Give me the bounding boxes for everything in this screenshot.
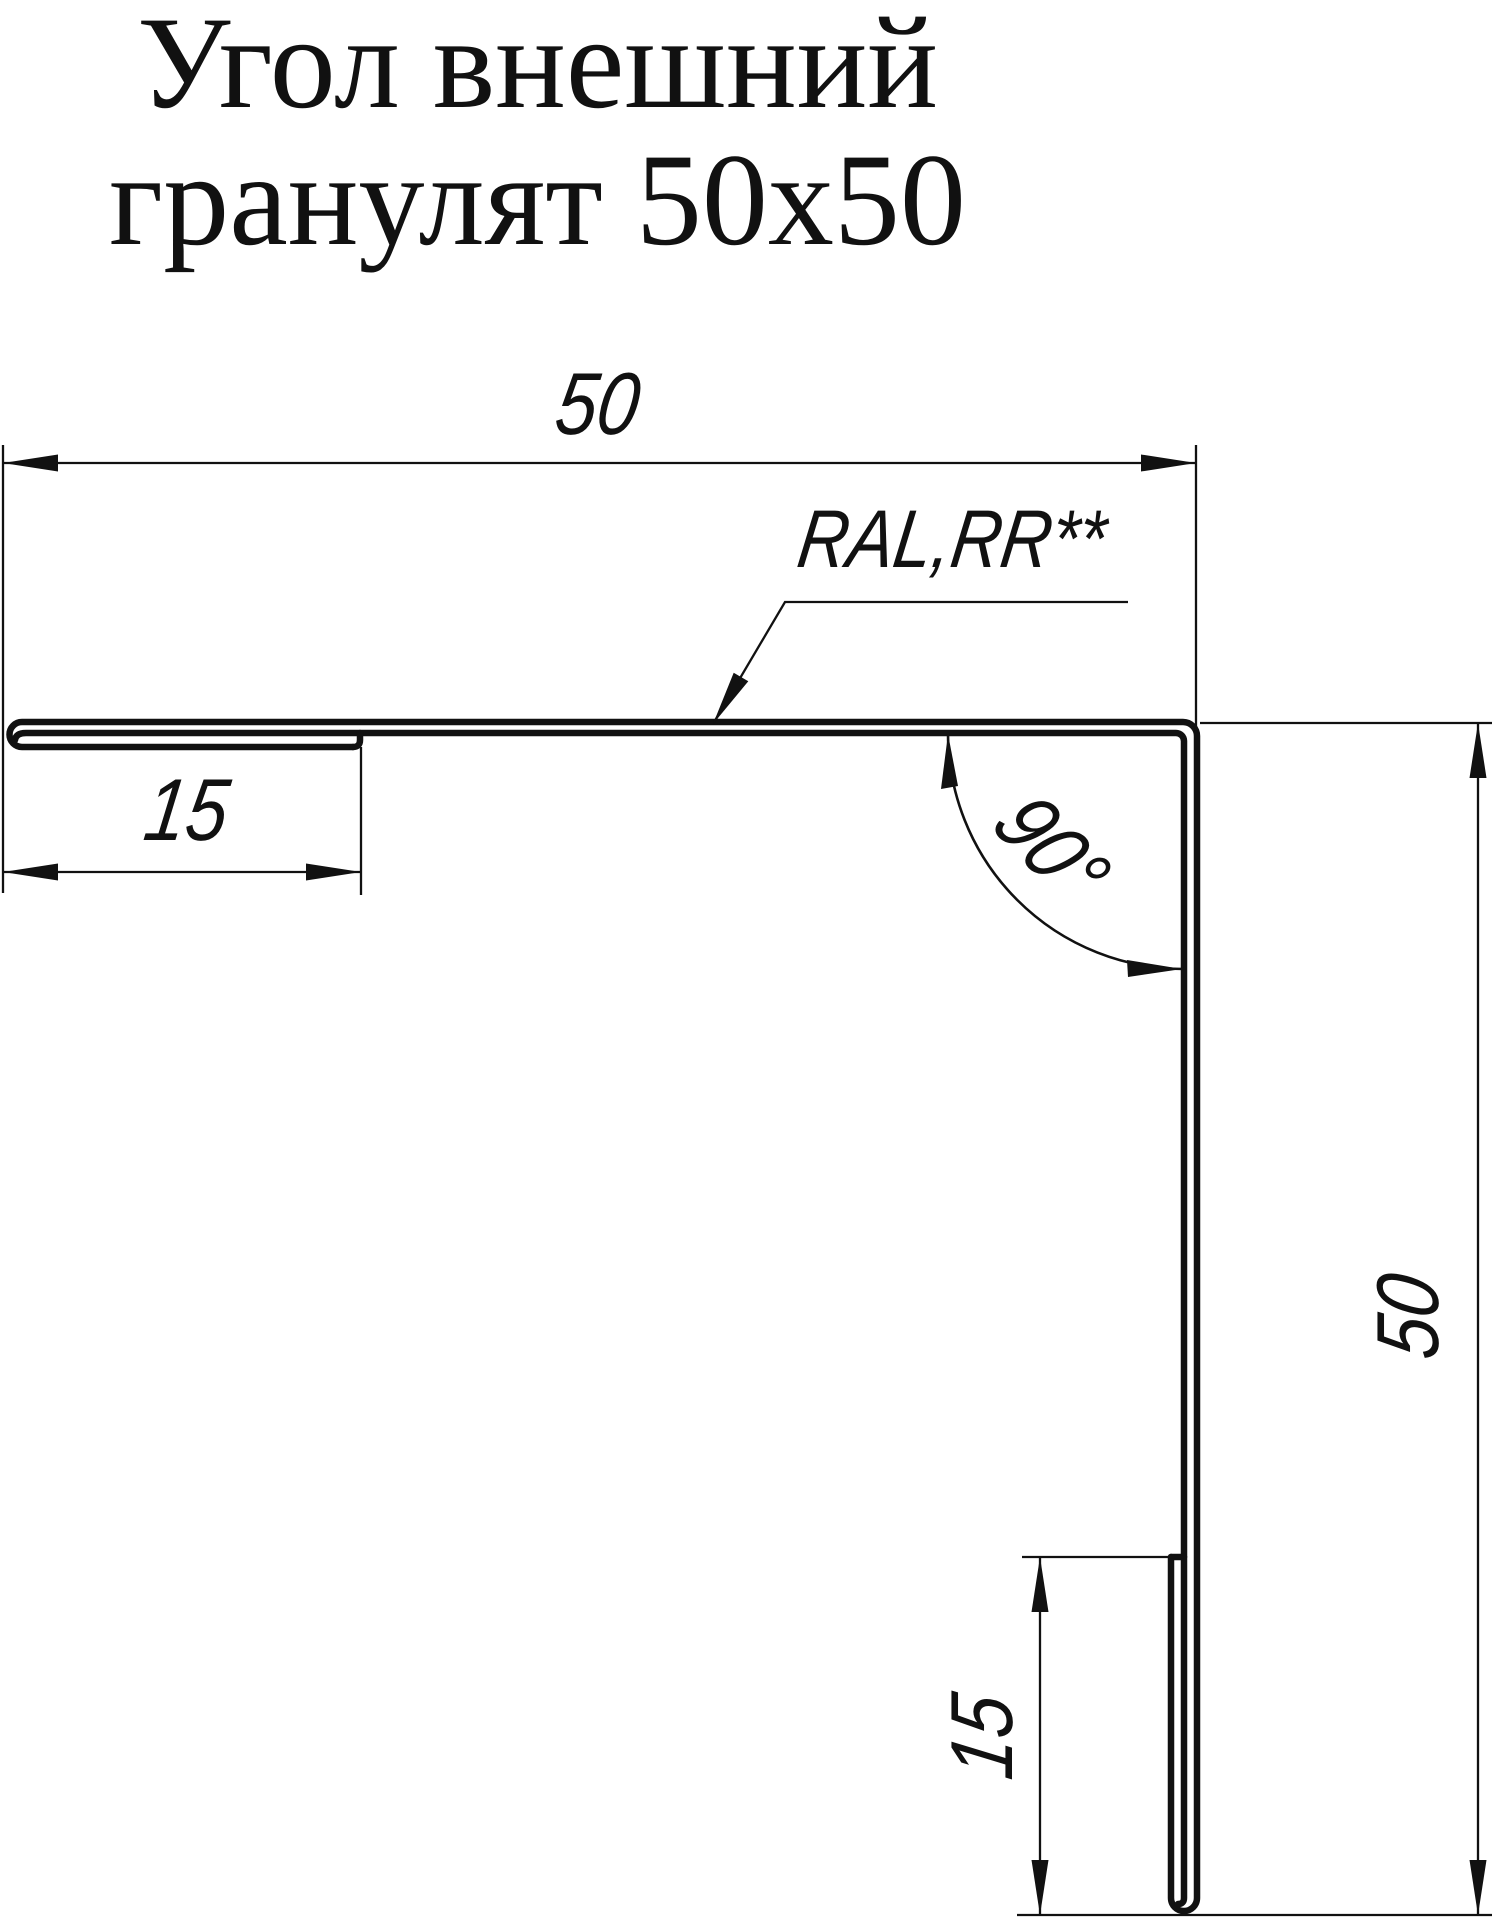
- arrowhead-up-icon: [1032, 1557, 1049, 1612]
- drawing-title: Угол внешнийгранулят 50x50: [0, 0, 1075, 269]
- arrowhead-left-icon: [3, 455, 58, 472]
- dim-text-bottom-hem: 15: [931, 1688, 1033, 1785]
- dim-text-top-width: 50: [550, 353, 647, 455]
- arrowhead-right-icon: [1141, 455, 1196, 472]
- arc-arrowhead-right-icon: [1127, 960, 1182, 977]
- arrowhead-up-icon: [1470, 723, 1487, 778]
- corner-profile-drawing: [0, 0, 1505, 1920]
- arrowhead-down-icon: [1032, 1860, 1049, 1915]
- arrowhead-left-icon: [3, 864, 58, 881]
- leader-arrowhead-icon: [713, 673, 748, 724]
- coating-text: RAL,RR**: [792, 493, 1111, 587]
- dimension-bottom-hem: [1022, 1557, 1184, 1915]
- coating-leader: [713, 602, 1128, 724]
- drawing-sheet: Угол внешнийгранулят 50x50 50 15 RAL,RR*…: [0, 0, 1505, 1920]
- dim-text-left-hem: 15: [139, 759, 236, 861]
- title-line-2: гранулят 50x50: [109, 126, 966, 273]
- dim-text-right-height: 50: [1357, 1268, 1459, 1365]
- leader-line: [713, 602, 1128, 724]
- title-line-1: Угол внешний: [137, 0, 938, 136]
- arrowhead-down-icon: [1470, 1860, 1487, 1915]
- arrowhead-right-icon: [306, 864, 361, 881]
- arc-arrowhead-up-icon: [941, 734, 958, 789]
